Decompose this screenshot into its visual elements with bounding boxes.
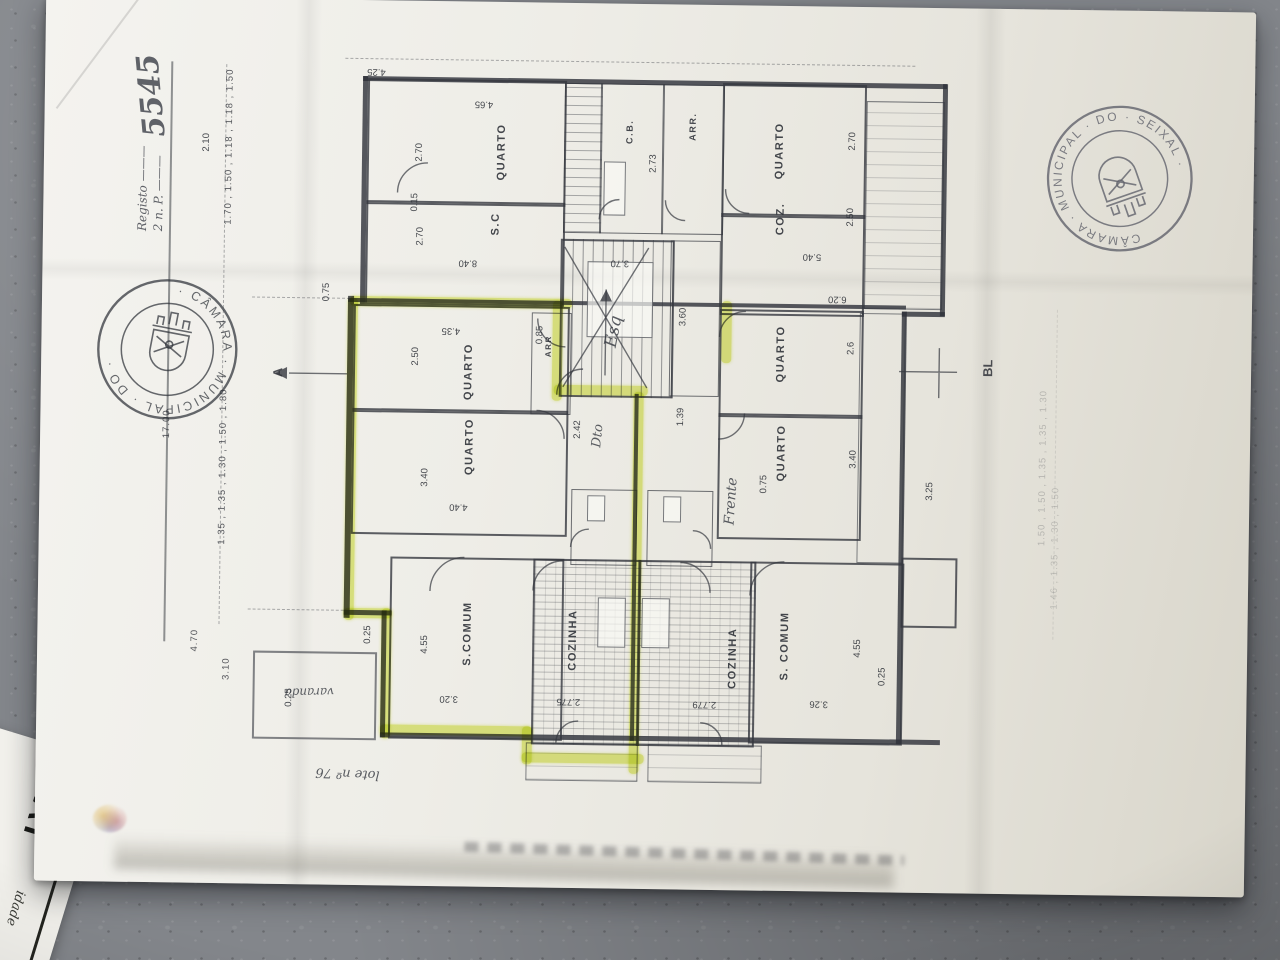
dimension-label: 4.55 [852,639,863,658]
dimension-chain-faint: 1.50 , 1.50 , 1.35 , 1.35 , 1.30 [1036,390,1049,546]
room-label-quarto: QUARTO [774,325,787,382]
dimension-label: 3.60 [677,308,688,327]
dimension-label: 2.70 [414,143,425,162]
dimension-label: 2.6 [845,342,856,355]
dimension-label: 4.65 [475,99,494,110]
dimension-label: 0.75 [758,475,769,494]
municipal-stamp-right: CÂMARA · MUNICIPAL · DO · SEIXAL · [1020,79,1219,278]
room-quarto [721,83,867,219]
dimension-label: 3.70 [610,258,629,269]
dimension-label: 4.40 [449,501,468,512]
dimension-label: 0.15 [409,193,420,212]
svg-text:· CÂMARA · MUNICIPAL · DO ·: · CÂMARA · MUNICIPAL · DO · [93,272,246,428]
highlight-segment [380,608,392,738]
exterior-wall [902,312,945,318]
dimension-label: 3.20 [439,693,458,704]
handwriting-lote: lote nº 76 [315,764,380,782]
paper-crease [284,0,322,884]
dimension-chain: 4.70 [189,629,200,652]
room-label-cozinha: COZINHA [567,609,580,670]
room-label-quarto: QUARTO [495,123,508,180]
dimension-label: 6.20 [828,294,847,305]
dimension-chain: 3.10 [220,657,231,680]
stamp-ring-text: CÂMARA · MUNICIPAL · DO · SEIXAL · [1031,90,1208,267]
dimension-label: 2.50 [410,347,421,366]
room-label-quarto: QUARTO [773,122,786,179]
room-label-cb: C.B. [624,119,634,144]
room-label-coz: COZ. [774,202,786,235]
room-quarto [351,408,569,537]
dimension-label: 3.40 [419,468,430,487]
extension-line [252,296,350,298]
dimension-label: 0.75 [321,283,332,302]
handwriting-frente: Frente [721,477,740,526]
dimension-label: 2.70 [415,227,426,246]
section-marker-bl: BL [980,360,995,378]
stamp-ring-text: · CÂMARA · MUNICIPAL · DO · [93,272,246,428]
dimension-label: 4.55 [419,635,430,654]
svg-text:CÂMARA · MUNICIPAL · DO · SEIX: CÂMARA · MUNICIPAL · DO · SEIXAL · [1031,90,1208,267]
room-quarto [366,78,567,207]
room-label-cozinha: COZINHA [726,628,739,689]
room-label-sc: S.C [490,212,502,235]
room-label-arr: ARR. [687,112,697,141]
extension-line [345,58,915,67]
highlight-segment [522,752,644,764]
dimension-label: 2.42 [572,420,583,439]
handwriting-dto: Dto [589,423,606,448]
municipal-stamp-left: · CÂMARA · MUNICIPAL · DO · [80,262,255,437]
dimension-label: 3.25 [924,482,935,501]
dimension-label: 0.25 [362,625,373,644]
registry-label: Registo ——— [134,145,151,231]
registry-handwriting: Registo ——— 2 n. P. ——— 5545 [132,54,169,232]
dimension-label: 2.10 [201,133,212,152]
side-gallery [856,313,905,564]
dimension-label: 3.40 [847,450,858,469]
room-sc [365,200,565,307]
balcony [864,101,945,310]
corridor [669,240,721,397]
dimension-label: 3.26 [809,698,828,709]
registry-number: 5545 [130,53,172,139]
ink-smudge [93,804,127,832]
room-label-scomum: S.COMUM [461,601,474,666]
at-letter-text-fragment: idade [3,889,28,928]
entry-balcony [647,744,762,784]
room-label-quarto: QUARTO [775,424,788,481]
dimension-label: 2.73 [648,154,659,173]
room-arr [661,84,725,235]
kitchen-counter [597,597,626,647]
bathtub-fixture [603,161,626,215]
toilet-fixture [663,496,681,522]
dimension-label: 0.25 [876,668,887,687]
toilet-fixture [587,495,605,521]
highlight-segment [380,724,532,736]
section-marker-a: A [270,368,285,378]
paper-crease [964,9,1006,894]
floor-plan-sheet: Registo ——— 2 n. P. ——— 5545 1.70 , 1.50… [34,0,1256,897]
dimension-label: 0.85 [534,326,545,345]
paper-corner-fold [56,0,141,109]
dimension-label: 4.35 [442,325,461,336]
photo-of-floor-plan: AT idade anchei Registo ——— 2 n. P. ——— … [0,0,1280,960]
highlight-segment [721,301,732,363]
dimension-label: 2.779 [692,699,716,710]
annex-box [900,558,957,629]
room-quarto [718,309,863,419]
registry-process: 2 n. P. ——— [150,145,167,231]
room-closet [563,83,603,234]
dimension-label: 2.775 [556,696,580,707]
dimension-label: 5.40 [803,251,822,262]
dimension-label: 2.70 [847,132,858,151]
extension-line [248,608,344,610]
kitchen-counter [641,598,670,648]
handwriting-varanda: varanda [284,685,334,700]
dimension-label: 4.25 [367,66,386,77]
dimension-label: 1.39 [675,408,686,427]
dimension-label: 8.40 [458,257,477,268]
room-label-quarto: QUARTO [463,418,476,475]
room-cozinha [531,558,642,745]
dimension-label: 2.50 [845,208,856,227]
room-scomum [748,561,905,745]
room-label-scomum: S. COMUM [778,611,791,680]
room-label-quarto: QUARTO [462,343,475,400]
